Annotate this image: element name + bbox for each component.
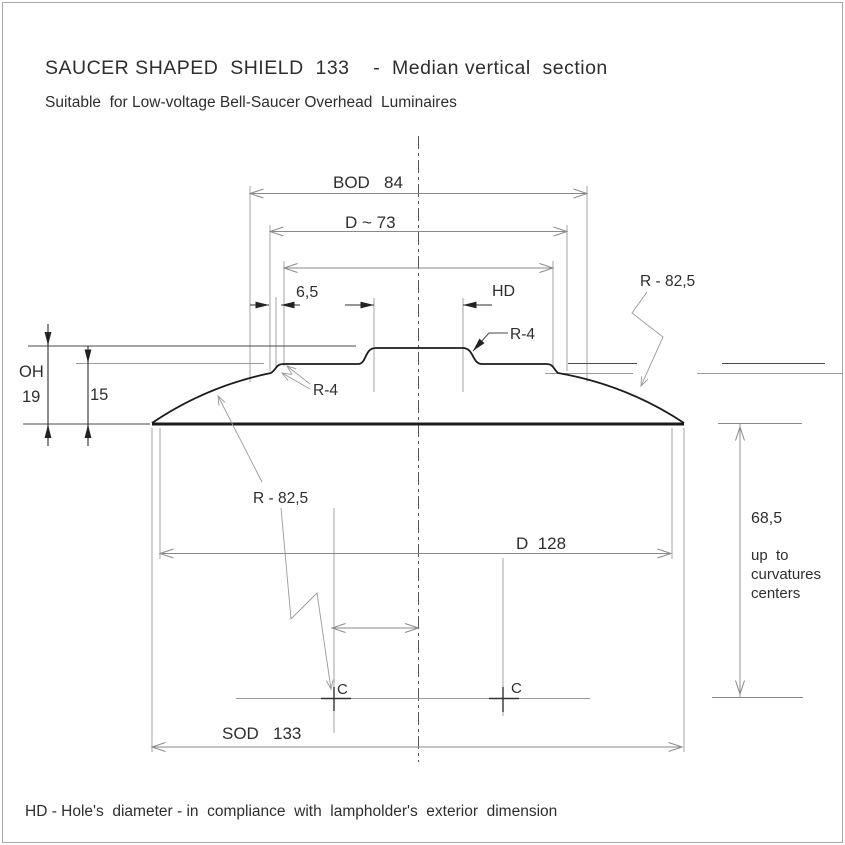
dim-inner-depth-label: 15 <box>90 386 108 404</box>
annotation-radius-lower: R - 82,5 <box>218 396 331 689</box>
dim-overall-height: OH 19 <box>19 324 48 446</box>
dim-inner-depth: 15 <box>88 346 108 446</box>
center-height-note-1: up to <box>751 547 789 564</box>
page-subtitle: Suitable for Low-voltage Bell-Saucer Ove… <box>45 94 457 111</box>
center-mark-left-label: C <box>337 681 348 698</box>
center-height-note-3: centers <box>751 585 800 602</box>
radius-lower-label: R - 82,5 <box>253 490 308 507</box>
drawing-canvas: SAUCER SHAPED SHIELD 133 - Median vertic… <box>0 0 845 845</box>
dim-sod: SOD 133 <box>152 724 682 747</box>
technical-drawing-sheet: SAUCER SHAPED SHIELD 133 - Median vertic… <box>0 0 845 845</box>
dim-hole-diameter: HD <box>345 283 515 305</box>
fillet-lower-label: R-4 <box>313 382 338 399</box>
dim-d-lower-label: D 128 <box>516 534 566 553</box>
annotation-radius-upper: R - 82,5 <box>632 273 695 386</box>
curvature-center-left: C <box>321 681 351 711</box>
extension-lines <box>23 186 842 752</box>
fillet-upper-label: R-4 <box>510 326 535 343</box>
dim-center-height-label: 68,5 <box>751 510 782 527</box>
dim-sod-label: SOD 133 <box>222 724 301 743</box>
page-title: SAUCER SHAPED SHIELD 133 - Median vertic… <box>45 57 608 79</box>
curvature-center-right: C <box>489 680 522 712</box>
dim-oh-value: 19 <box>22 388 40 406</box>
dim-hole-diameter-label: HD <box>492 283 515 300</box>
dim-bod-label: BOD 84 <box>333 173 403 192</box>
center-mark-right-label: C <box>511 680 522 697</box>
dim-d-lower: D 128 <box>160 534 671 554</box>
annotation-fillet-lower: R-4 <box>282 366 338 399</box>
dim-edge-offset-label: 6,5 <box>296 284 318 301</box>
dim-d-upper-label: D ~ 73 <box>345 213 396 232</box>
footer-note: HD - Hole's diameter - in compliance wit… <box>25 803 557 820</box>
header: SAUCER SHAPED SHIELD 133 - Median vertic… <box>45 57 608 111</box>
annotation-fillet-upper: R-4 <box>473 326 535 351</box>
dim-center-height: 68,5 up to curvatures centers <box>712 424 821 698</box>
dim-oh-label: OH <box>19 363 44 381</box>
radius-upper-label: R - 82,5 <box>640 273 695 290</box>
center-height-note-2: curvatures <box>751 566 821 583</box>
